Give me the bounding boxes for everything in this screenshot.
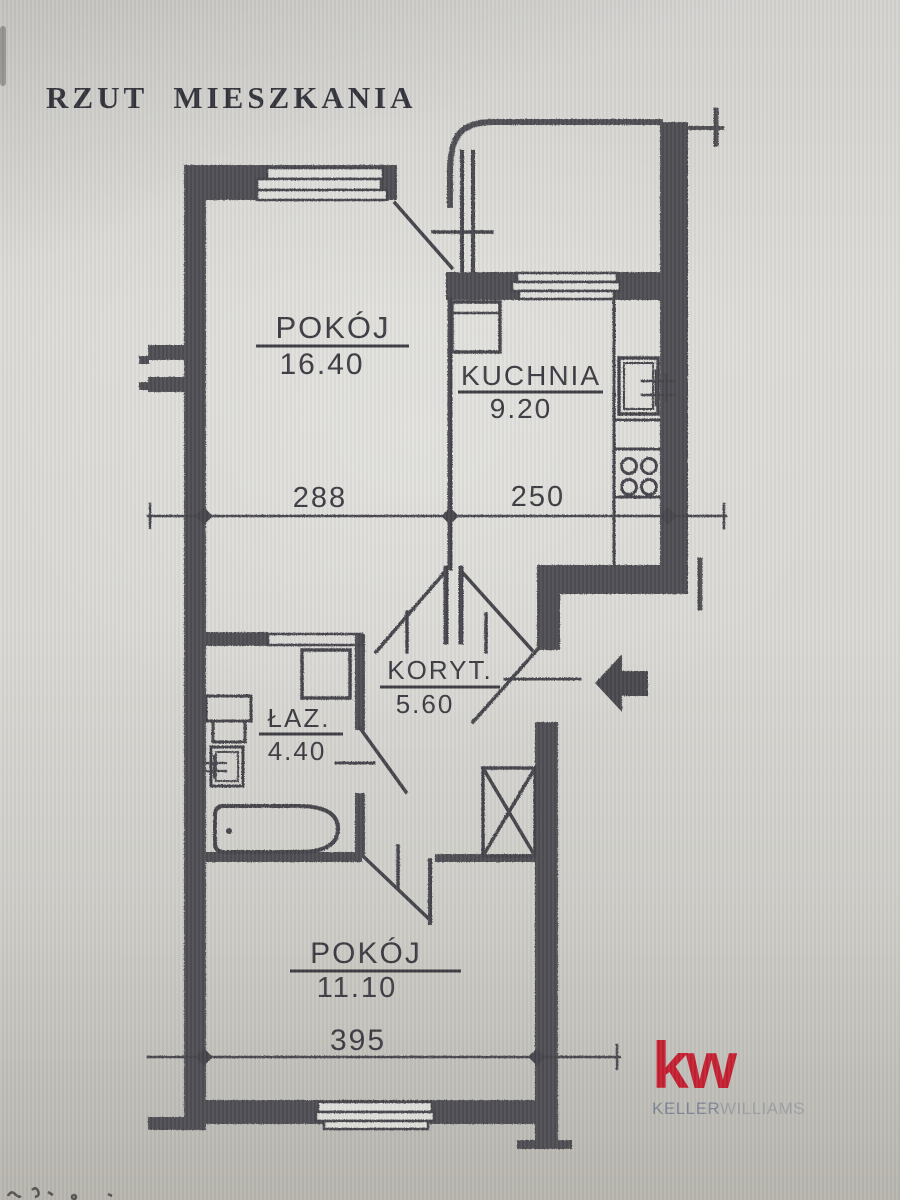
kitchen-name: KUCHNIA [461,360,601,391]
floor-plan-drawing: POKÓJ 16.40 KUCHNIA 9.20 KORYT. 5.60 ŁAZ… [0,0,900,1200]
wall-corridor-right-upper [537,594,560,650]
door-balcony-icon [395,152,492,270]
kitchen-cabinet-icon [452,302,500,352]
balcony-outline [450,122,660,205]
washbasin-icon [204,747,243,786]
door-bathroom-icon [336,728,406,792]
wall-left [184,165,206,1124]
kw-logo-mark: kw [652,1032,805,1098]
room-top-area: 16.40 [279,348,364,381]
window-kitchen-icon [512,273,620,299]
wall-kitchen-bottom [537,565,688,594]
door-room-bottom-icon [365,846,430,923]
door-double-hall-icon [376,568,532,652]
dimension-395: 395 [330,1024,386,1057]
wall-niche-tick-1 [139,356,149,364]
kw-logo-williams: WILLIAMS [720,1099,805,1118]
handwriting-smudge [4,1182,224,1200]
corridor-name: KORYT. [387,655,492,685]
wall-niche-tick-2 [139,382,149,390]
entrance-arrow-icon [595,654,648,712]
wall-foot-bottom-right [517,1140,572,1149]
room-bottom-area: 11.10 [317,972,397,1004]
bathroom-name: ŁAZ. [268,703,331,733]
room-top-name: POKÓJ [275,310,390,345]
window-room-bottom-icon [316,1102,434,1129]
bathroom-area: 4.40 [268,736,327,766]
wardrobe-icon [483,768,535,856]
label-bathroom: ŁAZ. 4.40 [259,703,343,766]
stove-icon [622,459,657,495]
dimension-288: 288 [293,482,347,514]
washing-machine-icon [302,650,350,698]
wall-bathroom-right-lower [355,793,365,858]
wall-bathroom-top-thin [268,634,362,645]
dimension-line-upper [148,504,726,528]
wall-ext-bottom-right [535,1124,558,1142]
toilet-icon [206,696,251,742]
label-room-top: POKÓJ 16.40 [256,310,409,381]
kw-logo: kw KELLERWILLIAMS [652,1032,805,1117]
room-bottom-name: POKÓJ [310,937,422,970]
corridor-area: 5.60 [396,689,455,719]
label-room-bottom: POKÓJ 11.10 [290,937,461,1004]
kw-logo-wordmark: KELLERWILLIAMS [652,1100,805,1117]
kitchen-area: 9.20 [490,393,553,424]
bathtub-icon [215,806,338,852]
kw-logo-keller: KELLER [652,1099,720,1118]
wall-niche-bottom [148,377,184,392]
dimension-250: 250 [511,481,565,513]
wall-bathroom-top [206,632,268,646]
section-ticks [688,110,722,608]
wall-right-kitchen [660,122,688,594]
kitchen-counter [614,300,660,565]
wall-bathroom-right-upper [355,634,365,730]
window-room-top-icon [257,168,387,200]
wall-foot-bottom-left [148,1117,206,1130]
wall-niche-top [148,345,184,360]
floor-plan-photo: RZUT MIESZKANIA [0,0,900,1200]
label-kitchen: KUCHNIA 9.20 [458,360,603,424]
